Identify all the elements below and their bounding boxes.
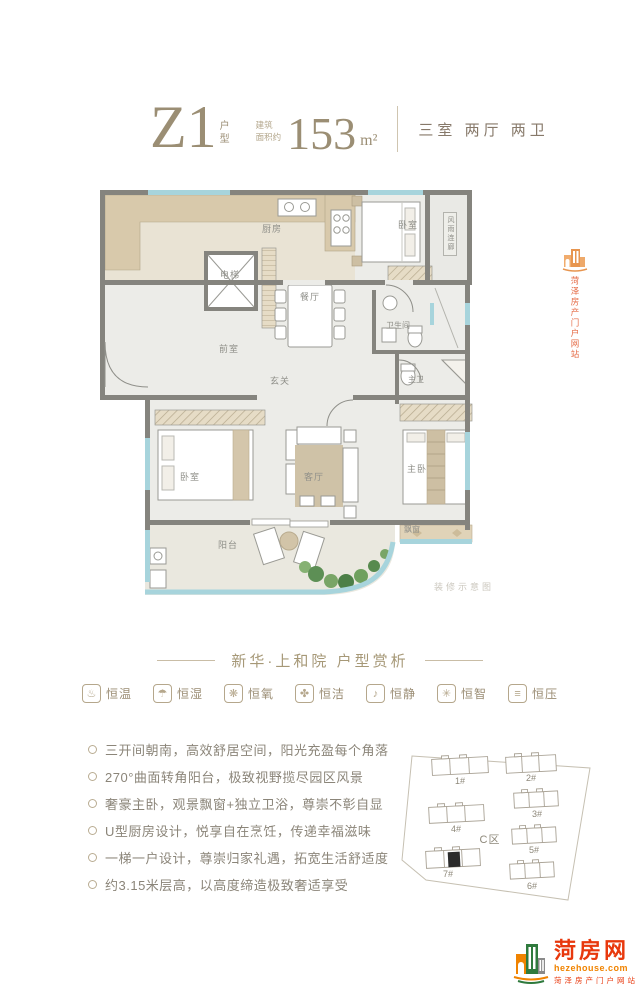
- thermometer-icon: ♨: [82, 684, 101, 703]
- title-line-right: [425, 660, 483, 661]
- site-watermark: 菏泽房产门户网站: [545, 247, 605, 360]
- area-value: 153: [287, 113, 356, 154]
- unit-code: Z1: [150, 100, 217, 154]
- bullet-ring: [88, 772, 97, 781]
- building-label-1: 1#: [455, 776, 465, 786]
- room-label-master-bath: 主卫: [408, 374, 424, 385]
- room-label-bedroom-top: 卧室: [398, 218, 418, 231]
- room-label-master-bedroom: 主卧: [407, 462, 427, 475]
- hezehouse-logo: 菏房网 hezehouse.com 菏泽房产门户网站: [512, 940, 638, 986]
- bell-icon: ♪: [366, 684, 385, 703]
- watermark-building-icon: [561, 247, 589, 273]
- selling-point-5: 一梯一户设计，尊崇归家礼遇，拓宽生活舒适度: [88, 848, 389, 867]
- room-label-foyer: 玄关: [270, 374, 290, 387]
- room-label-bay-window: 飘窗: [404, 524, 420, 535]
- area-prefix: 建筑 面积约: [256, 119, 282, 145]
- room-label-balcony: 阳台: [218, 538, 238, 551]
- atom-icon: ✳: [437, 684, 456, 703]
- bed-left-bedroom: [158, 430, 253, 500]
- bullet-ring: [88, 745, 97, 754]
- fan-icon: ❋: [224, 684, 243, 703]
- room-label-kitchen: 厨房: [262, 222, 282, 235]
- floorplan-poster: Z1 户 型 建筑 面积约 153 m² 三室 两厅 两卫: [0, 0, 640, 991]
- room-label-bedroom-left: 卧室: [180, 470, 200, 483]
- logo-tagline: 菏泽房产门户网站: [554, 975, 638, 986]
- building-label-7: 7#: [443, 869, 453, 879]
- bullet-ring: [88, 880, 97, 889]
- selling-point-3: 奢豪主卧，观景飘窗+独立卫浴，尊崇不彰自显: [88, 794, 383, 813]
- floor-plan-graphic: [100, 190, 475, 600]
- building-label-5: 5#: [529, 845, 539, 855]
- plan-note: 装修示意图: [434, 580, 494, 593]
- room-label-elevator: 电梯: [220, 268, 240, 281]
- feature-heng-ya: ≡ 恒压: [508, 684, 558, 703]
- features-row: ♨ 恒温 ☂ 恒湿 ❋ 恒氧 ✤ 恒洁 ♪ 恒静 ✳ 恒智 ≡ 恒压: [0, 684, 640, 703]
- pressure-icon: ≡: [508, 684, 527, 703]
- feature-heng-zhi: ✳ 恒智: [437, 684, 487, 703]
- zone-label: C区: [480, 834, 501, 846]
- room-label-living: 客厅: [304, 470, 324, 483]
- section-title: 新华·上和院 户型赏析: [231, 650, 408, 671]
- bed-top-bedroom: [352, 196, 420, 266]
- bullet-ring: [88, 826, 97, 835]
- rooms-summary: 三室 两厅 两卫: [418, 119, 548, 140]
- building-label-4: 4#: [451, 824, 461, 834]
- selling-point-1: 三开间朝南，高效舒居空间，阳光充盈每个角落: [88, 740, 389, 759]
- feature-heng-wen: ♨ 恒温: [82, 684, 132, 703]
- area-unit: m²: [360, 132, 377, 150]
- title-line-left: [157, 660, 215, 661]
- feature-heng-jie: ✤ 恒洁: [295, 684, 345, 703]
- unit-type-label: 户 型: [220, 121, 230, 146]
- clean-brush-icon: ✤: [295, 684, 314, 703]
- building-label-6: 6#: [527, 881, 537, 891]
- logo-building-icon: [512, 942, 550, 984]
- logo-name: 菏房网: [554, 940, 638, 962]
- building-label-2: 2#: [526, 773, 536, 783]
- feature-heng-yang: ❋ 恒氧: [224, 684, 274, 703]
- room-label-dining: 餐厅: [300, 290, 320, 303]
- room-label-front-room: 前室: [219, 342, 239, 355]
- building-7-highlighted: [425, 846, 480, 869]
- selling-point-4: U型厨房设计，悦享自在烹饪，传递幸福滋味: [88, 821, 371, 840]
- room-label-bathroom: 卫生间: [386, 320, 410, 331]
- building-label-3: 3#: [532, 809, 542, 819]
- room-label-corridor: 风雨连廊: [443, 212, 457, 256]
- bullet-ring: [88, 853, 97, 862]
- section-title-row: 新华·上和院 户型赏析: [0, 650, 640, 671]
- water-drop-icon: ☂: [153, 684, 172, 703]
- bullet-ring: [88, 799, 97, 808]
- watermark-text: 菏泽房产门户网站: [569, 276, 581, 360]
- site-plan: 1# 2# 3# 4# 5# 6# 7# C区: [398, 748, 598, 933]
- header-divider: [397, 106, 398, 152]
- feature-heng-jing: ♪ 恒静: [366, 684, 416, 703]
- selling-point-2: 270°曲面转角阳台，极致视野揽尽园区风景: [88, 767, 363, 786]
- unit-header: Z1 户 型 建筑 面积约 153 m² 三室 两厅 两卫: [150, 100, 549, 154]
- feature-heng-shi: ☂ 恒湿: [153, 684, 203, 703]
- logo-domain: hezehouse.com: [554, 963, 638, 973]
- selling-point-6: 约3.15米层高，以高度缔造极致奢适享受: [88, 875, 348, 894]
